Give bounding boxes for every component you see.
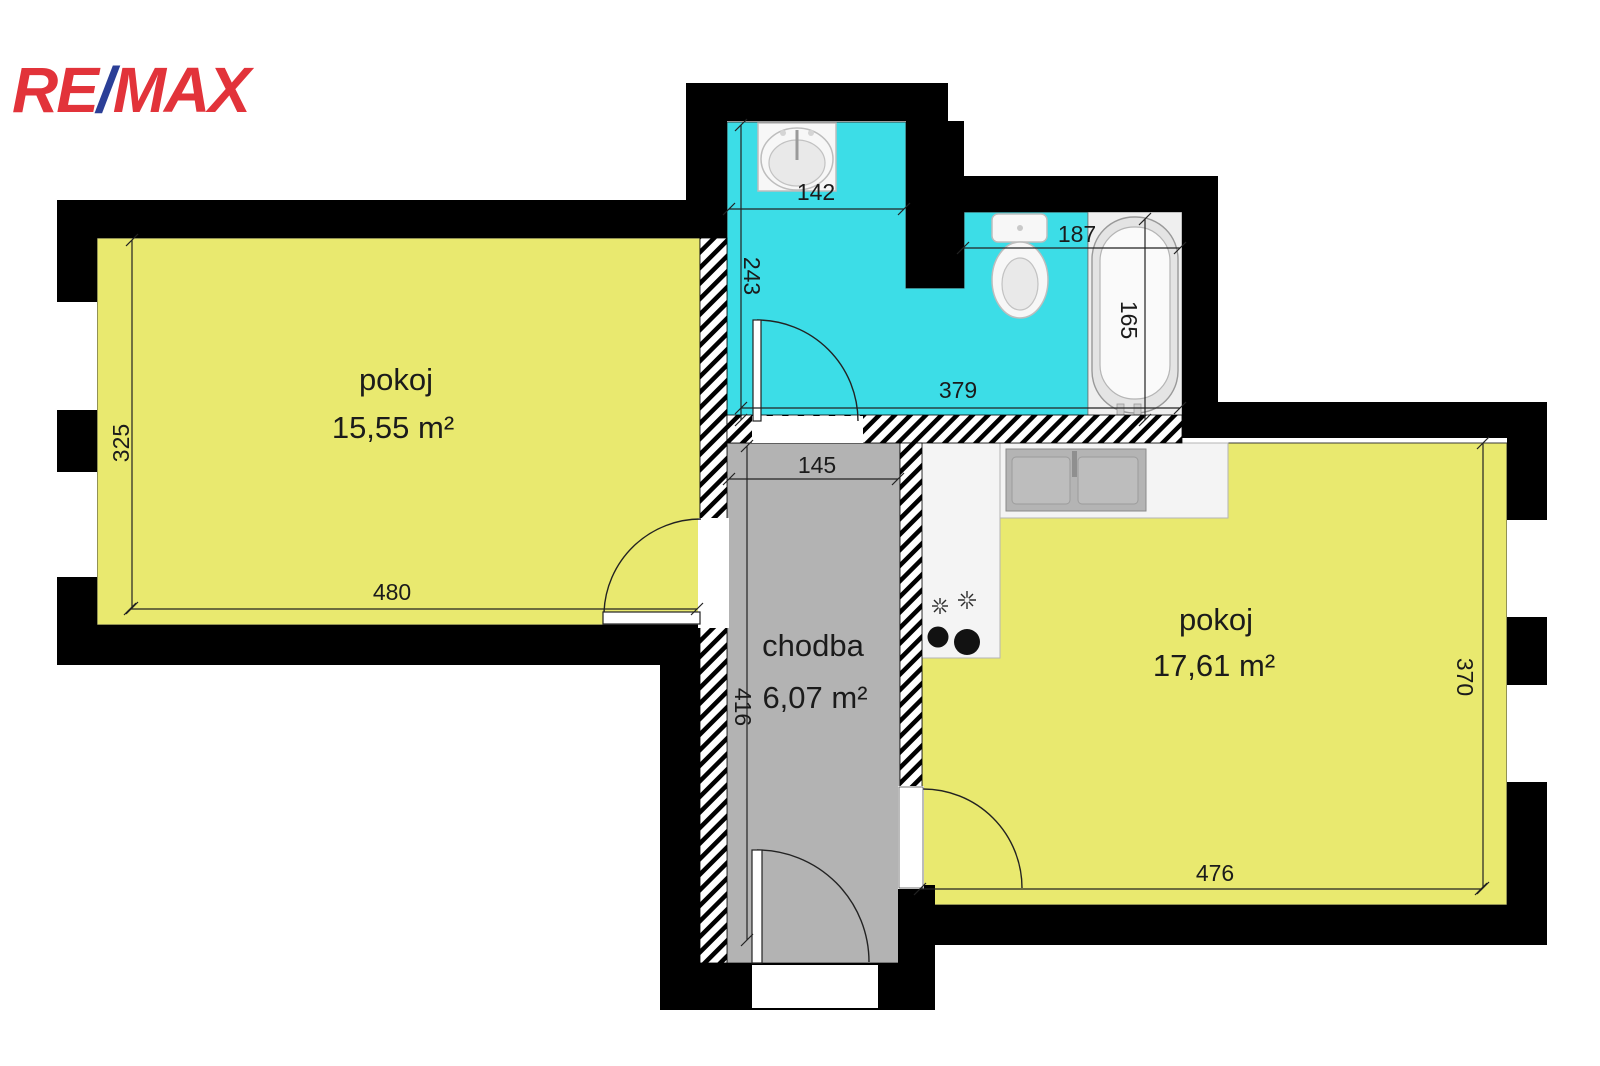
toilet-icon bbox=[992, 214, 1048, 318]
dim-room-left-height: 325 bbox=[108, 424, 134, 462]
dim-bath-wc-width: 187 bbox=[1058, 221, 1096, 247]
dim-bath-tub-length: 165 bbox=[1116, 301, 1142, 339]
wall-left-column bbox=[660, 625, 703, 1010]
door-gap-room-left bbox=[698, 518, 729, 628]
room-left-name: pokoj bbox=[359, 362, 433, 397]
room-right-name: pokoj bbox=[1179, 602, 1253, 637]
spark-icon bbox=[932, 598, 948, 614]
corridor-area: 6,07 m² bbox=[762, 680, 867, 715]
dim-bath-sink-depth: 243 bbox=[739, 257, 765, 295]
dim-room-right-depth: 370 bbox=[1452, 658, 1478, 696]
wall-corridor-corner bbox=[898, 885, 935, 965]
wall-room-right-bottom bbox=[922, 905, 1547, 945]
window-right-2 bbox=[1507, 685, 1547, 782]
wall-room-left-top bbox=[57, 200, 713, 238]
wall-wc-top bbox=[948, 176, 1218, 212]
wall-room-left-left bbox=[57, 200, 97, 665]
dim-room-left-width: 480 bbox=[373, 579, 411, 605]
door-gap-bathroom bbox=[752, 416, 863, 443]
dim-corridor-width: 145 bbox=[798, 452, 836, 478]
logo-re: RE bbox=[12, 54, 97, 126]
remax-logo: RE/MAX bbox=[12, 58, 249, 122]
dim-corridor-length: 416 bbox=[730, 688, 756, 726]
window-left-1 bbox=[57, 302, 97, 410]
door-leaf-room-right bbox=[899, 787, 923, 888]
door-gap-entrance bbox=[752, 965, 878, 1008]
window-left-2 bbox=[57, 472, 97, 577]
logo-max: MAX bbox=[113, 54, 249, 126]
room-right-area: 17,61 m² bbox=[1153, 648, 1275, 683]
wall-room-right-top bbox=[1218, 402, 1547, 438]
wall-tub-right bbox=[1182, 212, 1218, 438]
dim-room-right-width: 476 bbox=[1196, 860, 1234, 886]
wall-room-left-bottom bbox=[57, 625, 713, 665]
floor-plan: 325 480 142 243 187 165 379 145 416 370 … bbox=[0, 0, 1600, 1066]
wall-bath-left-upper bbox=[686, 121, 727, 238]
kitchen-counter-vertical bbox=[922, 443, 1000, 658]
dim-bath-total-width: 379 bbox=[939, 377, 977, 403]
room-left-area: 15,55 m² bbox=[332, 410, 454, 445]
dim-bath-sink-width: 142 bbox=[797, 179, 835, 205]
floor-plan-page: RE/MAX bbox=[0, 0, 1600, 1066]
wall-bath-top bbox=[686, 83, 948, 121]
kitchen-sink-icon bbox=[1006, 449, 1146, 511]
corridor-name: chodba bbox=[762, 628, 864, 663]
window-right-1 bbox=[1507, 520, 1547, 617]
logo-slash: / bbox=[97, 54, 113, 126]
